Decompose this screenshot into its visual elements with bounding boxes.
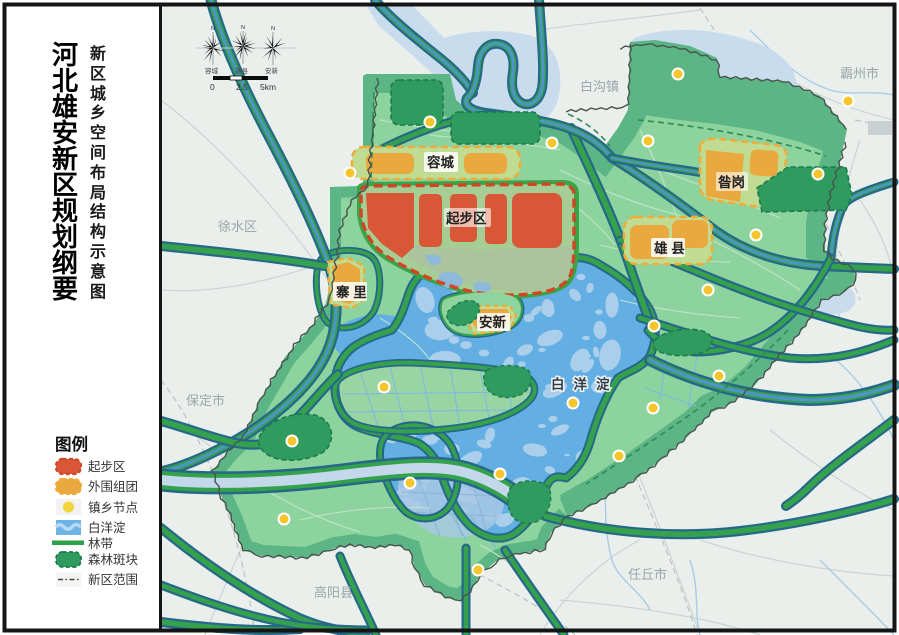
svg-text:雄 县: 雄 县 [653, 240, 685, 256]
svg-text:图例: 图例 [55, 434, 88, 454]
svg-text:N: N [211, 26, 215, 32]
svg-text:起步区: 起步区 [445, 210, 487, 226]
svg-text:2.5: 2.5 [236, 82, 248, 92]
svg-text:安新: 安新 [265, 66, 279, 75]
svg-text:0: 0 [210, 82, 215, 92]
svg-text:寨 里: 寨 里 [335, 284, 367, 300]
svg-text:容城: 容城 [426, 154, 454, 170]
svg-text:白沟镇: 白沟镇 [580, 79, 619, 94]
svg-text:新区范围: 新区范围 [88, 572, 138, 587]
svg-text:起步区: 起步区 [88, 460, 126, 474]
svg-text:雄县: 雄县 [235, 66, 249, 75]
svg-text:白洋淀: 白洋淀 [551, 376, 619, 392]
svg-text:任丘市: 任丘市 [628, 567, 667, 582]
svg-text:容城: 容城 [205, 66, 219, 75]
svg-text:安新: 安新 [479, 314, 506, 330]
svg-text:霸州市: 霸州市 [840, 66, 879, 81]
svg-text:森林斑块: 森林斑块 [88, 552, 139, 567]
svg-text:白洋淀: 白洋淀 [88, 520, 126, 535]
svg-text:N: N [241, 25, 245, 31]
svg-text:镇乡节点: 镇乡节点 [88, 501, 138, 515]
svg-text:徐水区: 徐水区 [218, 219, 257, 234]
svg-text:N: N [271, 26, 275, 32]
svg-text:高阳县: 高阳县 [314, 585, 353, 600]
svg-text:5km: 5km [260, 82, 276, 92]
svg-text:林带: 林带 [88, 537, 113, 551]
svg-text:外围组团: 外围组团 [88, 480, 138, 494]
svg-text:昝岗: 昝岗 [718, 174, 745, 190]
svg-text:保定市: 保定市 [186, 393, 225, 408]
